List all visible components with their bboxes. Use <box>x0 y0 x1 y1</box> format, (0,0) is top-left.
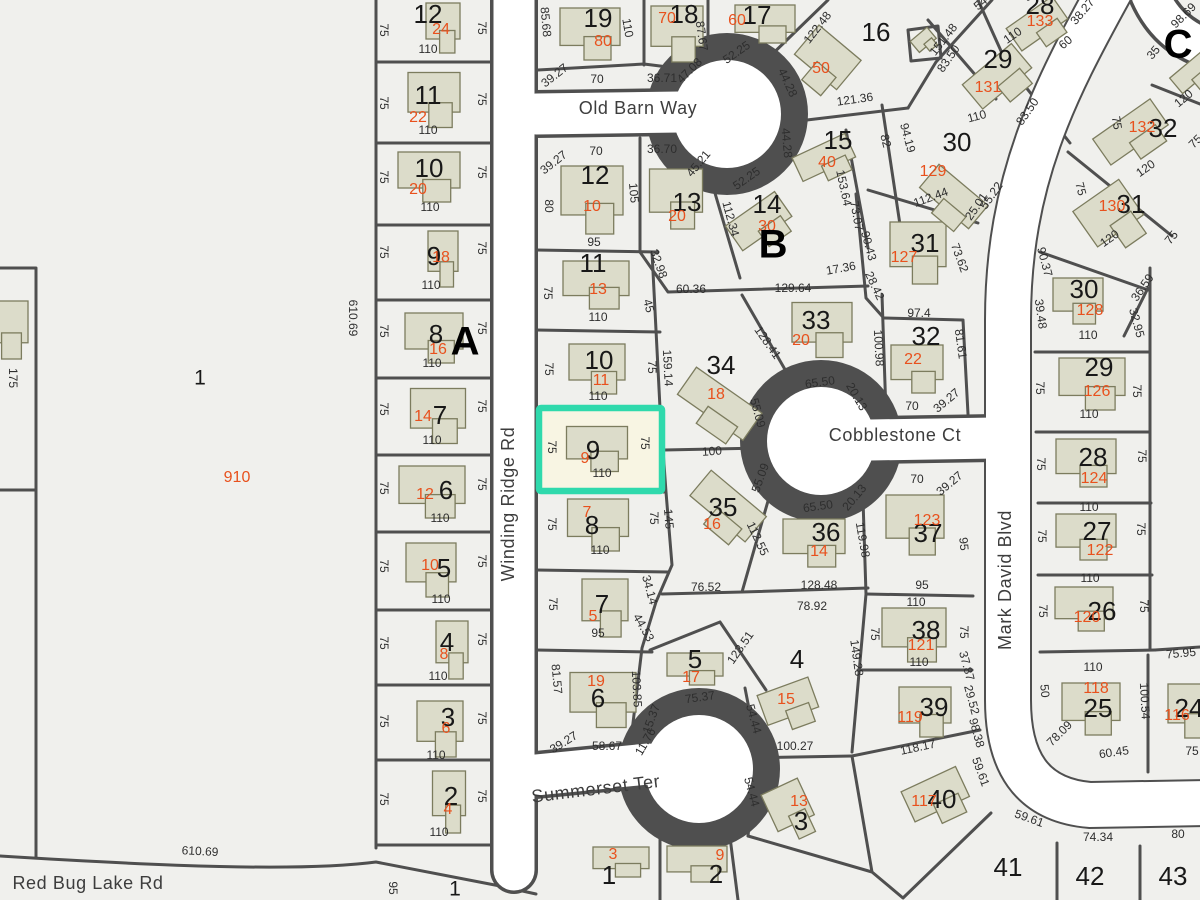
dimension-label: 70 <box>905 399 919 413</box>
dimension-label: 75 <box>377 636 391 650</box>
dimension-label: 159.14 <box>660 349 676 387</box>
dimension-label: 128.48 <box>801 578 838 592</box>
dimension-label: 110 <box>909 655 928 669</box>
dimension-label: 100.98 <box>871 329 887 367</box>
address-number: 24 <box>432 21 450 38</box>
address-number: 13 <box>790 793 808 810</box>
dimension-label: 110 <box>418 42 437 56</box>
address-number: 14 <box>810 543 828 560</box>
dimension-label: 44.28 <box>779 127 796 158</box>
dimension-label: 75 <box>475 399 489 413</box>
address-number: 18 <box>432 249 450 266</box>
dimension-label: 75 <box>1033 381 1047 395</box>
address-number: 130 <box>1099 198 1126 215</box>
dimension-label: 105 <box>626 182 642 203</box>
address-number: 9 <box>581 450 590 467</box>
dimension-label: 175 <box>6 368 20 388</box>
lot-number: 1 <box>602 860 616 890</box>
lot-number: 4 <box>790 644 804 674</box>
dimension-label: 110 <box>588 389 607 403</box>
lot-number: 42 <box>1076 861 1105 891</box>
dimension-label: 75 <box>1137 599 1151 613</box>
dimension-label: 70 <box>589 144 603 158</box>
dimension-label: 75 <box>475 165 489 179</box>
dimension-label: 110 <box>422 433 441 447</box>
dimension-label: 75 <box>1130 384 1144 398</box>
dimension-label: 75 <box>545 440 559 454</box>
address-number: 5 <box>589 608 598 625</box>
dimension-label: 610.69 <box>346 300 360 337</box>
address-number: 80 <box>594 33 612 50</box>
lot-number: 19 <box>584 3 613 33</box>
dimension-label: 75 <box>1185 744 1199 758</box>
summerset-ter-culdesac <box>645 715 753 823</box>
dimension-label: 100.54 <box>1137 682 1153 720</box>
dimension-label: 36.71 <box>647 71 677 85</box>
lot-number: 14 <box>753 189 782 219</box>
dimension-label: 75 <box>475 21 489 35</box>
dimension-label: 76.52 <box>691 580 721 594</box>
lot-number: 29 <box>984 44 1013 74</box>
address-number: 17 <box>682 669 700 686</box>
dimension-label: 74.34 <box>1083 830 1113 844</box>
lot-number: 39 <box>920 692 949 722</box>
dimension-label: 110 <box>1078 328 1097 342</box>
lot-number: 30 <box>943 127 972 157</box>
dimension-label: 80 <box>1171 827 1185 841</box>
dimension-label: 129.64 <box>775 281 812 295</box>
lot-number: 10 <box>415 153 444 183</box>
address-number: 8 <box>440 646 449 663</box>
lot-number: 43 <box>1159 861 1188 891</box>
dimension-label: 95 <box>591 626 605 640</box>
address-number: 10 <box>583 198 601 215</box>
dimension-label: 50 <box>1037 684 1052 699</box>
address-number: 126 <box>1084 383 1111 400</box>
address-number: 121 <box>908 637 935 654</box>
dimension-label: 110 <box>420 200 439 214</box>
dimension-label: 75 <box>377 96 391 110</box>
dimension-label: 145 <box>661 508 677 529</box>
dimension-label: 95 <box>386 881 400 895</box>
dimension-label: 58.67 <box>592 739 622 753</box>
lot-number: 33 <box>802 305 831 335</box>
dimension-label: 75 <box>475 632 489 646</box>
dimension-label: 75 <box>377 324 391 338</box>
lot-number: 12 <box>581 160 610 190</box>
address-number: 122 <box>1087 542 1114 559</box>
dimension-label: 75 <box>545 517 559 531</box>
address-number: 12 <box>416 486 434 503</box>
address-number: 6 <box>442 720 451 737</box>
dimension-label: 75 <box>377 245 391 259</box>
dimension-label: 110 <box>906 595 925 609</box>
address-number: 70 <box>658 10 676 27</box>
address-number: 120 <box>1074 609 1101 626</box>
dimension-label: 75 <box>1036 604 1050 618</box>
dimension-label: 75 <box>1109 115 1125 131</box>
lot-number: 11 <box>415 80 442 110</box>
dimension-label: 75 <box>957 625 971 639</box>
address-number: 131 <box>975 79 1002 96</box>
block-letter: B <box>759 223 788 267</box>
address-number: 15 <box>777 691 795 708</box>
dimension-label: 75 <box>377 23 391 37</box>
dimension-label: 110 <box>426 748 445 762</box>
lot-number: 10 <box>585 345 614 375</box>
lot-number: 29 <box>1085 352 1114 382</box>
address-number: 10 <box>421 557 439 574</box>
address-number: 118 <box>1083 680 1109 697</box>
address-number: 16 <box>703 516 721 533</box>
address-number: 7 <box>583 504 592 521</box>
address-number: 123 <box>914 512 941 529</box>
dimension-label: 75 <box>475 789 489 803</box>
lot-number: 28 <box>1079 442 1108 472</box>
dimension-label: 110 <box>590 543 609 557</box>
dimension-label: 78.92 <box>797 599 827 613</box>
address-number: 60 <box>728 12 746 29</box>
address-number: 19 <box>587 673 605 690</box>
dimension-label: 110 <box>1079 500 1098 514</box>
dimension-label: 85.68 <box>538 6 555 37</box>
dimension-label: 100 <box>701 443 722 458</box>
dimension-label: 110 <box>421 278 440 292</box>
lot-number: 1 <box>449 878 461 900</box>
address-number: 20 <box>792 332 810 349</box>
dimension-label: 75 <box>475 477 489 491</box>
dimension-label: 610.69 <box>181 843 219 859</box>
street-name: Mark David Blvd <box>995 510 1015 650</box>
block-letter: C <box>1164 23 1193 67</box>
dimension-label: 75 <box>638 436 652 450</box>
address-number: 119 <box>897 709 923 726</box>
dimension-label: 75 <box>377 559 391 573</box>
dimension-label: 110 <box>430 511 449 525</box>
address-number: 22 <box>904 351 922 368</box>
lot-number: 34 <box>707 350 736 380</box>
dimension-label: 80 <box>542 199 556 213</box>
block-letter: A <box>451 320 480 364</box>
dimension-label: 75 <box>645 360 659 374</box>
parcel-map-canvas[interactable]: 1224112210209188167146125104836241910119… <box>0 0 1200 900</box>
dimension-label: 60.36 <box>676 282 706 296</box>
address-number: 14 <box>414 408 432 425</box>
dimension-label: 75 <box>377 714 391 728</box>
address-number: 20 <box>668 208 686 225</box>
address-number: 3 <box>609 846 618 863</box>
dimension-label: 75 <box>377 170 391 184</box>
dimension-label: 36.70 <box>647 142 677 156</box>
dimension-label: 95 <box>587 235 601 249</box>
lot-number: 7 <box>433 400 447 430</box>
dimension-label: 103.85 <box>629 670 645 708</box>
address-number: 13 <box>589 281 607 298</box>
lot-number: 41 <box>994 852 1023 882</box>
dimension-label: 95 <box>915 578 929 592</box>
dimension-label: 110 <box>588 310 607 324</box>
dimension-label: 75 <box>377 792 391 806</box>
address-number: 133 <box>1027 13 1054 30</box>
address-number: 18 <box>707 386 725 403</box>
address-number: 20 <box>409 181 427 198</box>
dimension-label: 95 <box>956 537 971 552</box>
address-number: 4 <box>444 801 453 818</box>
dimension-label: 75 <box>1035 529 1049 543</box>
dimension-label: 75.95 <box>1165 645 1196 662</box>
address-number: 40 <box>818 154 836 171</box>
lot-number: 11 <box>580 248 607 278</box>
lot-number: 16 <box>862 17 891 47</box>
dimension-label: 75 <box>377 481 391 495</box>
address-number: 128 <box>1077 302 1104 319</box>
lot-number: 3 <box>794 806 808 836</box>
street-name: Red Bug Lake Rd <box>12 873 163 893</box>
address-number: 116 <box>1164 707 1190 724</box>
dimension-label: 75 <box>546 597 560 611</box>
dimension-label: 100.27 <box>777 739 814 753</box>
address-number: 132 <box>1129 119 1156 136</box>
lot-number: 30 <box>1070 274 1099 304</box>
dimension-label: 75 <box>475 241 489 255</box>
dimension-label: 81.57 <box>549 663 566 694</box>
dimension-label: 110 <box>431 592 450 606</box>
address-number: 910 <box>224 469 251 486</box>
dimension-label: 70 <box>910 472 924 486</box>
dimension-label: 75 <box>542 362 556 376</box>
dimension-label: 110 <box>1080 571 1099 585</box>
dimension-label: 75 <box>541 286 555 300</box>
street-name: Old Barn Way <box>579 98 698 118</box>
lot-number: 1 <box>194 367 206 390</box>
dimension-label: 110 <box>1083 660 1102 674</box>
dimension-label: 75 <box>647 511 661 525</box>
dimension-label: 110 <box>422 356 441 370</box>
street-name: Cobblestone Ct <box>829 425 961 445</box>
dimension-label: 75 <box>1034 457 1048 471</box>
lot-number: 32 <box>912 321 941 351</box>
address-number: 124 <box>1081 470 1108 487</box>
dimension-label: 110 <box>592 466 611 480</box>
dimension-label: 110 <box>1079 407 1098 421</box>
dimension-label: 110 <box>429 825 448 839</box>
dimension-label: 75 <box>1134 522 1148 536</box>
lot-number: 17 <box>743 0 772 30</box>
address-number: 129 <box>920 163 947 180</box>
dimension-label: 110 <box>418 123 437 137</box>
lot-number: 25 <box>1084 693 1113 723</box>
dimension-label: 97.4 <box>907 306 931 320</box>
dimension-label: 75 <box>475 554 489 568</box>
dimension-label: 75 <box>475 711 489 725</box>
dimension-label: 75 <box>868 627 882 641</box>
address-number: 11 <box>593 372 610 389</box>
dimension-label: 70 <box>590 72 604 86</box>
address-number: 117 <box>911 793 937 810</box>
dimension-label: 75 <box>475 92 489 106</box>
lot-number: 5 <box>437 553 451 583</box>
dimension-label: 110 <box>428 669 447 683</box>
lot-number: 6 <box>439 475 453 505</box>
address-number: 127 <box>891 249 918 266</box>
dimension-label: 75 <box>377 402 391 416</box>
dimension-label: 75 <box>1135 449 1149 463</box>
address-number: 9 <box>716 847 725 864</box>
lot-number: 15 <box>824 125 853 155</box>
street-name: Winding Ridge Rd <box>498 427 518 582</box>
address-number: 50 <box>812 60 830 77</box>
